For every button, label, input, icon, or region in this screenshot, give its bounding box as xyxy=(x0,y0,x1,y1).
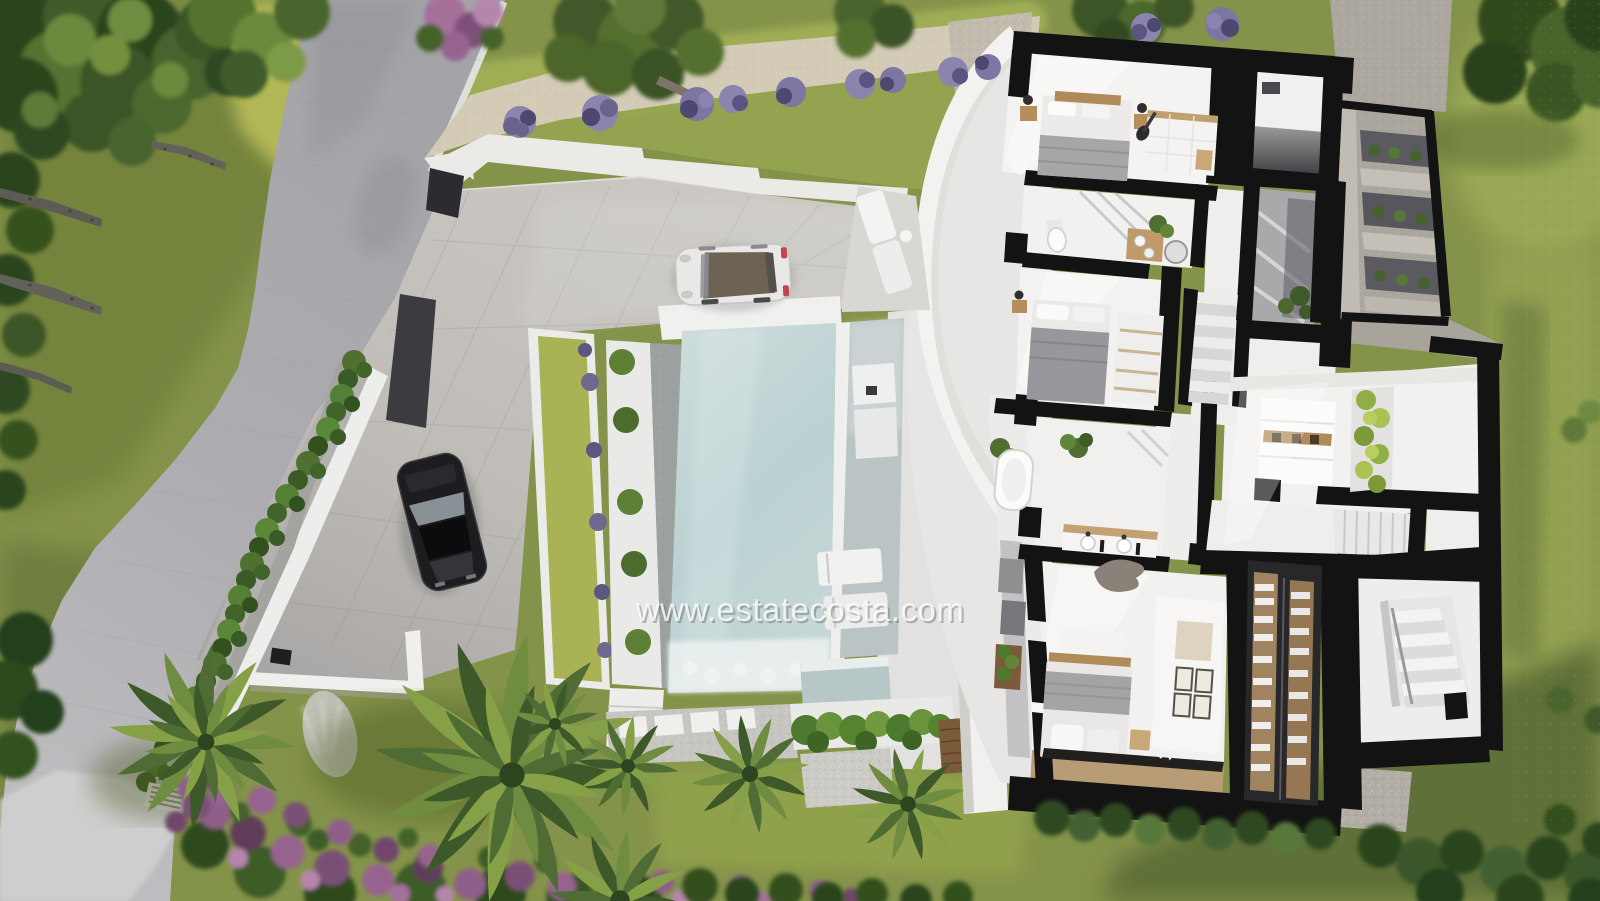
svg-text:www.estatecosta.com: www.estatecosta.com xyxy=(635,591,965,628)
